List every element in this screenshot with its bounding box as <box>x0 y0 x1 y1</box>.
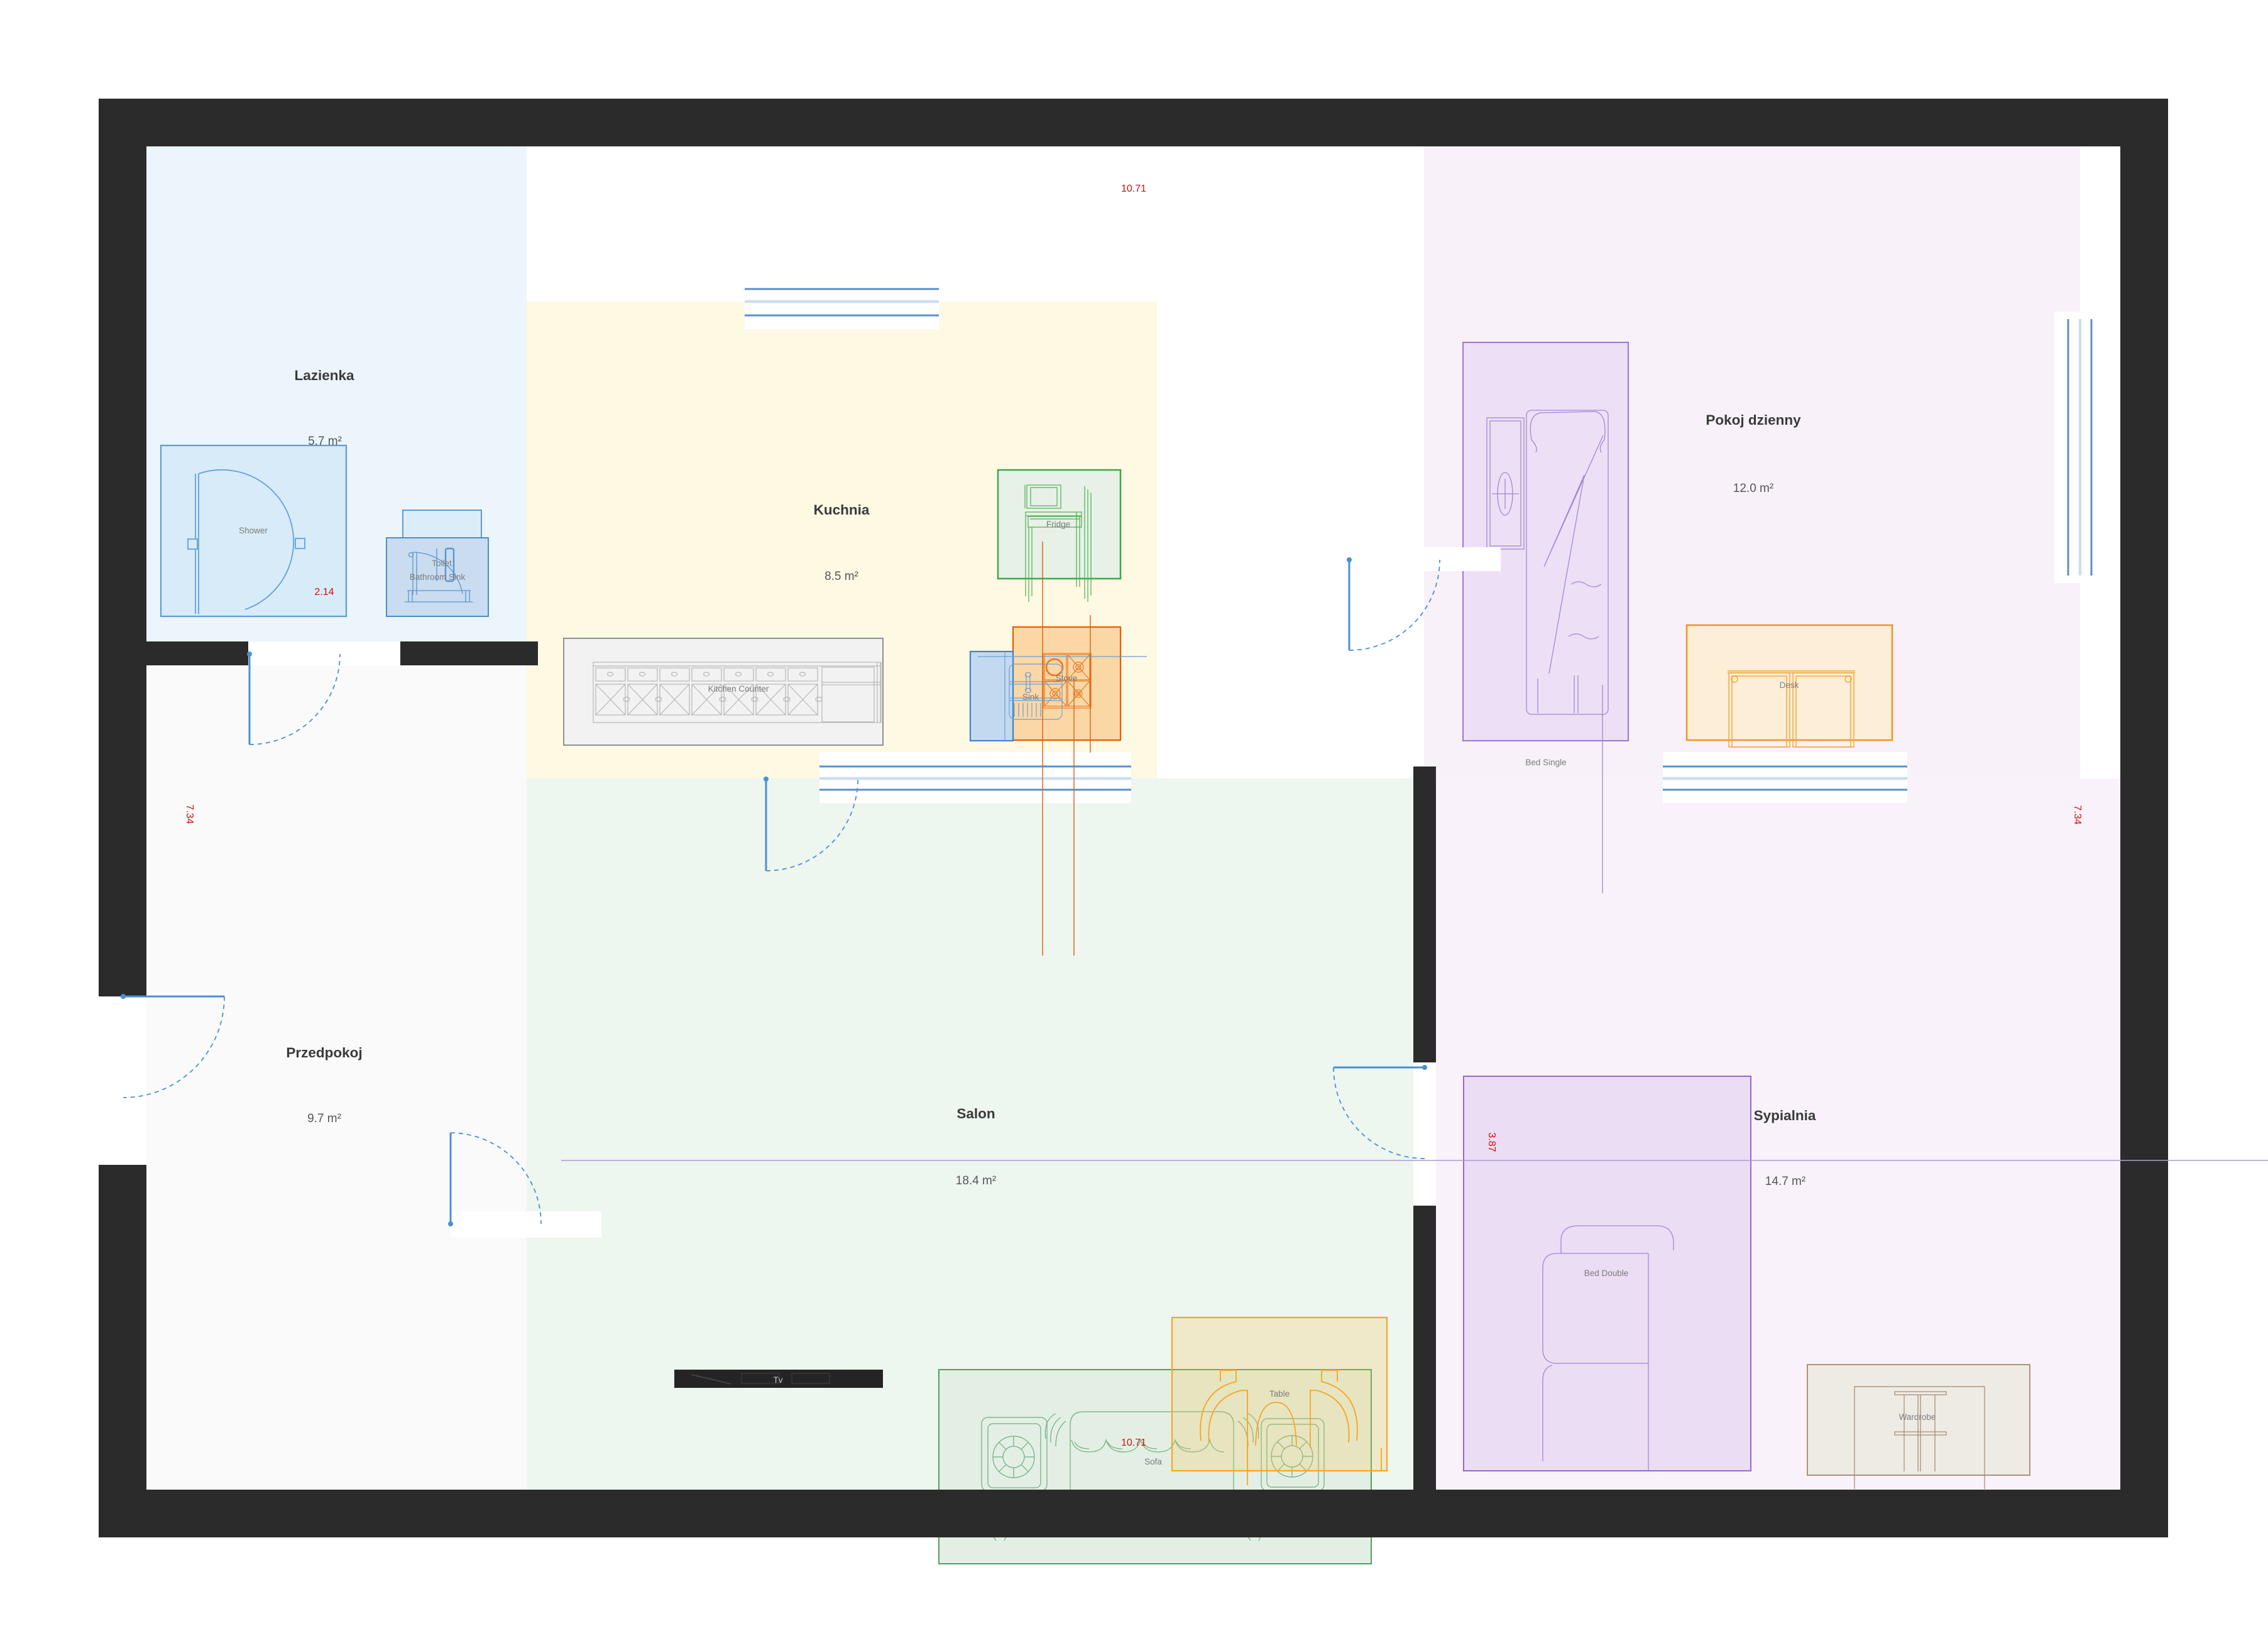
svg-text:Pokoj dzienny: Pokoj dzienny <box>1706 412 1801 428</box>
svg-text:Table: Table <box>1269 1389 1290 1399</box>
svg-text:Sink: Sink <box>1022 692 1039 702</box>
svg-text:7.34: 7.34 <box>184 804 195 824</box>
svg-text:Lazienka: Lazienka <box>294 368 354 383</box>
svg-text:Salon: Salon <box>956 1106 995 1121</box>
svg-text:2.14: 2.14 <box>314 587 334 597</box>
svg-text:Toilet: Toilet <box>432 559 452 568</box>
svg-text:Shower: Shower <box>239 526 268 535</box>
svg-text:Tv: Tv <box>774 1375 783 1385</box>
svg-text:Wardrobe: Wardrobe <box>1899 1412 1936 1422</box>
svg-text:12.0 m²: 12.0 m² <box>1733 482 1773 495</box>
svg-text:14.7 m²: 14.7 m² <box>1765 1175 1805 1188</box>
svg-text:Bed Double: Bed Double <box>1584 1268 1629 1278</box>
svg-text:Bathroom Sink: Bathroom Sink <box>410 572 466 582</box>
svg-text:9.7 m²: 9.7 m² <box>307 1112 341 1125</box>
svg-text:Bed Single: Bed Single <box>1525 758 1566 767</box>
svg-text:18.4 m²: 18.4 m² <box>956 1174 996 1187</box>
svg-text:7.34: 7.34 <box>2072 805 2083 824</box>
svg-text:3.87: 3.87 <box>1486 1132 1497 1152</box>
svg-text:10.71: 10.71 <box>1121 1437 1146 1448</box>
svg-text:Kuchnia: Kuchnia <box>814 502 870 518</box>
svg-text:Sofa: Sofa <box>1144 1457 1162 1466</box>
svg-text:Przedpokoj: Przedpokoj <box>286 1045 362 1061</box>
svg-text:Desk: Desk <box>1780 680 1799 690</box>
svg-text:Sypialnia: Sypialnia <box>1754 1108 1816 1123</box>
svg-text:Fridge: Fridge <box>1046 520 1070 529</box>
svg-text:10.71: 10.71 <box>1121 183 1146 194</box>
svg-text:5.7 m²: 5.7 m² <box>308 435 342 448</box>
svg-text:Stove: Stove <box>1056 674 1078 683</box>
svg-text:Kitchen Counter: Kitchen Counter <box>708 684 769 694</box>
svg-text:8.5 m²: 8.5 m² <box>824 570 858 583</box>
